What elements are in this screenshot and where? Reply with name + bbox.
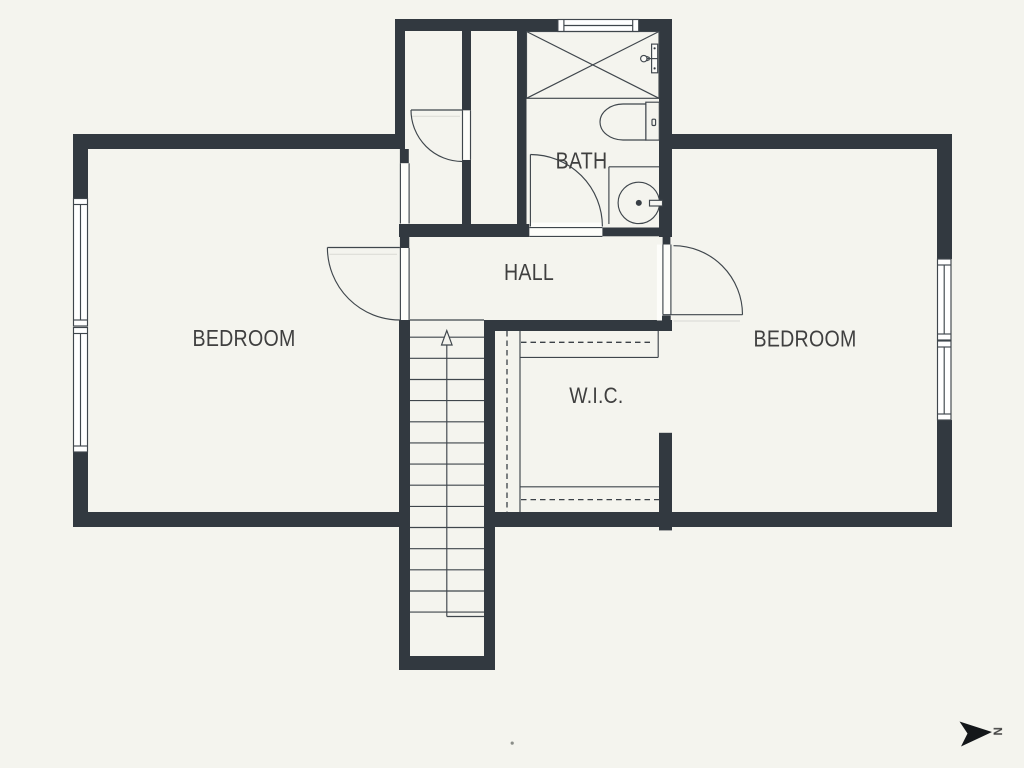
svg-text:N: N (991, 727, 1003, 735)
svg-text:BEDROOM: BEDROOM (753, 325, 856, 352)
svg-text:BEDROOM: BEDROOM (192, 324, 295, 351)
svg-text:HALL: HALL (504, 258, 554, 285)
svg-text:BATH: BATH (556, 147, 608, 174)
svg-text:W.I.C.: W.I.C. (569, 384, 623, 408)
